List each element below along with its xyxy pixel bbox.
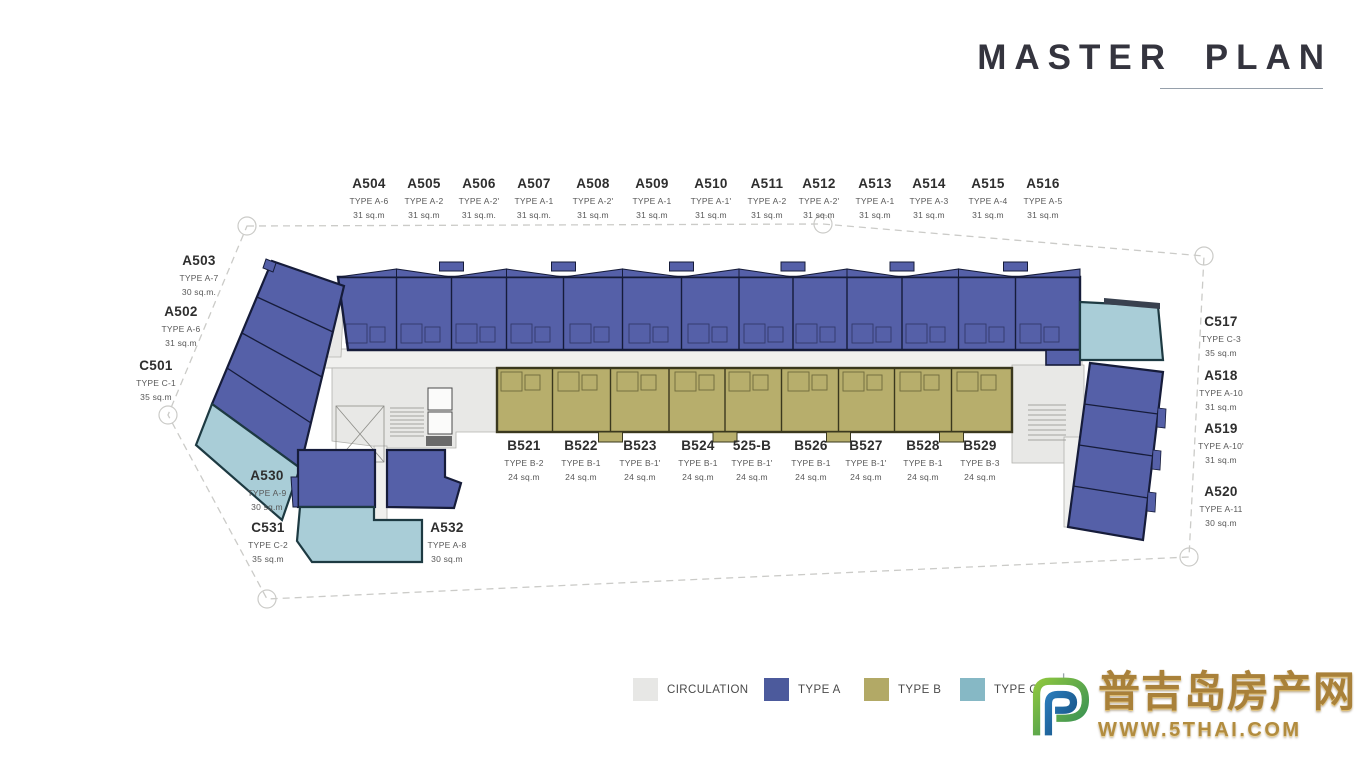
balcony [440, 262, 464, 271]
unit-block-c517 [1080, 302, 1163, 360]
legend-label: TYPE B [898, 684, 941, 696]
master-plan-page: MASTER PLAN [0, 0, 1356, 760]
balcony [552, 262, 576, 271]
legend-swatch [960, 678, 985, 701]
legend-swatch [764, 678, 789, 701]
watermark-url: WWW.5THAI.COM [1098, 720, 1356, 740]
legend-swatch [864, 678, 889, 701]
right-wing [1068, 298, 1166, 540]
elevator [428, 412, 452, 434]
5thai-logo [1026, 657, 1092, 753]
balcony [599, 432, 623, 442]
balcony [827, 432, 851, 442]
unit-block-a532 [387, 450, 461, 508]
type-b-band [497, 368, 1012, 442]
balcony [940, 432, 964, 442]
service-shaft [426, 436, 452, 446]
watermark-chinese-text: 普吉岛房产网 [1098, 671, 1356, 713]
watermark: 普吉岛房产网 WWW.5THAI.COM [1026, 650, 1356, 760]
legend-label: CIRCULATION [667, 684, 749, 696]
unit-block-c531 [297, 507, 422, 562]
legend-item-type-b: TYPE B [864, 678, 941, 701]
balcony [1004, 262, 1028, 271]
unit-block-a530 [298, 450, 375, 507]
legend-swatch [633, 678, 658, 701]
balcony [890, 262, 914, 271]
balcony [713, 432, 737, 442]
balcony [670, 262, 694, 271]
balcony-roof [338, 269, 397, 277]
balcony [781, 262, 805, 271]
legend-label: TYPE A [798, 684, 841, 696]
elevator [428, 388, 452, 410]
bottom-wing [291, 450, 461, 562]
legend-item-circulation: CIRCULATION [633, 678, 749, 701]
floor-plan-drawing [0, 0, 1356, 760]
legend-item-type-a: TYPE A [764, 678, 841, 701]
type-a-band [338, 262, 1080, 365]
